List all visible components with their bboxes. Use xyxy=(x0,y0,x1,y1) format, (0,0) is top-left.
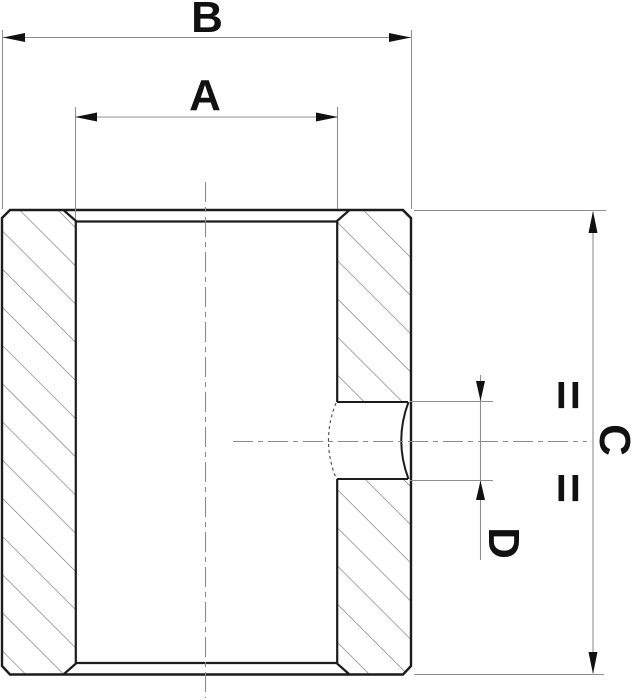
dimension-a: A xyxy=(75,71,338,219)
side-hole-bore-intersection-arc xyxy=(329,403,337,478)
thread-chamfer-top-line xyxy=(64,211,349,222)
dim-c-arrow-top xyxy=(589,211,598,233)
dim-b-arrow-right xyxy=(389,33,411,42)
dim-b-label: B xyxy=(191,0,223,42)
dim-a-arrow-left xyxy=(75,113,97,122)
technical-drawing-page: B A C D = = xyxy=(0,0,632,700)
dim-a-label: A xyxy=(189,71,221,120)
dim-b-arrow-left xyxy=(3,33,25,42)
dim-d-label: D xyxy=(479,527,528,559)
equality-mark-top: = xyxy=(539,380,597,410)
part-section-view xyxy=(2,210,411,675)
dim-d-arrow-top xyxy=(476,381,485,401)
dim-a-arrow-right xyxy=(316,113,338,122)
hatch-right-wall-lower xyxy=(337,479,411,675)
equality-mark-bottom: = xyxy=(539,473,597,503)
dimension-d: D xyxy=(410,375,528,560)
hatch-right-wall-upper xyxy=(337,210,411,402)
technical-drawing-canvas: B A C D = = xyxy=(0,0,632,700)
side-hole-outer-arc xyxy=(401,402,408,479)
dimension-c: C xyxy=(414,211,632,675)
dim-c-arrow-bottom xyxy=(589,652,598,674)
dim-c-label: C xyxy=(590,424,632,456)
hatch-left-wall xyxy=(2,210,77,675)
dim-d-arrow-bottom xyxy=(476,481,485,501)
thread-chamfer-bottom-line xyxy=(64,663,349,674)
side-hole xyxy=(329,402,409,479)
